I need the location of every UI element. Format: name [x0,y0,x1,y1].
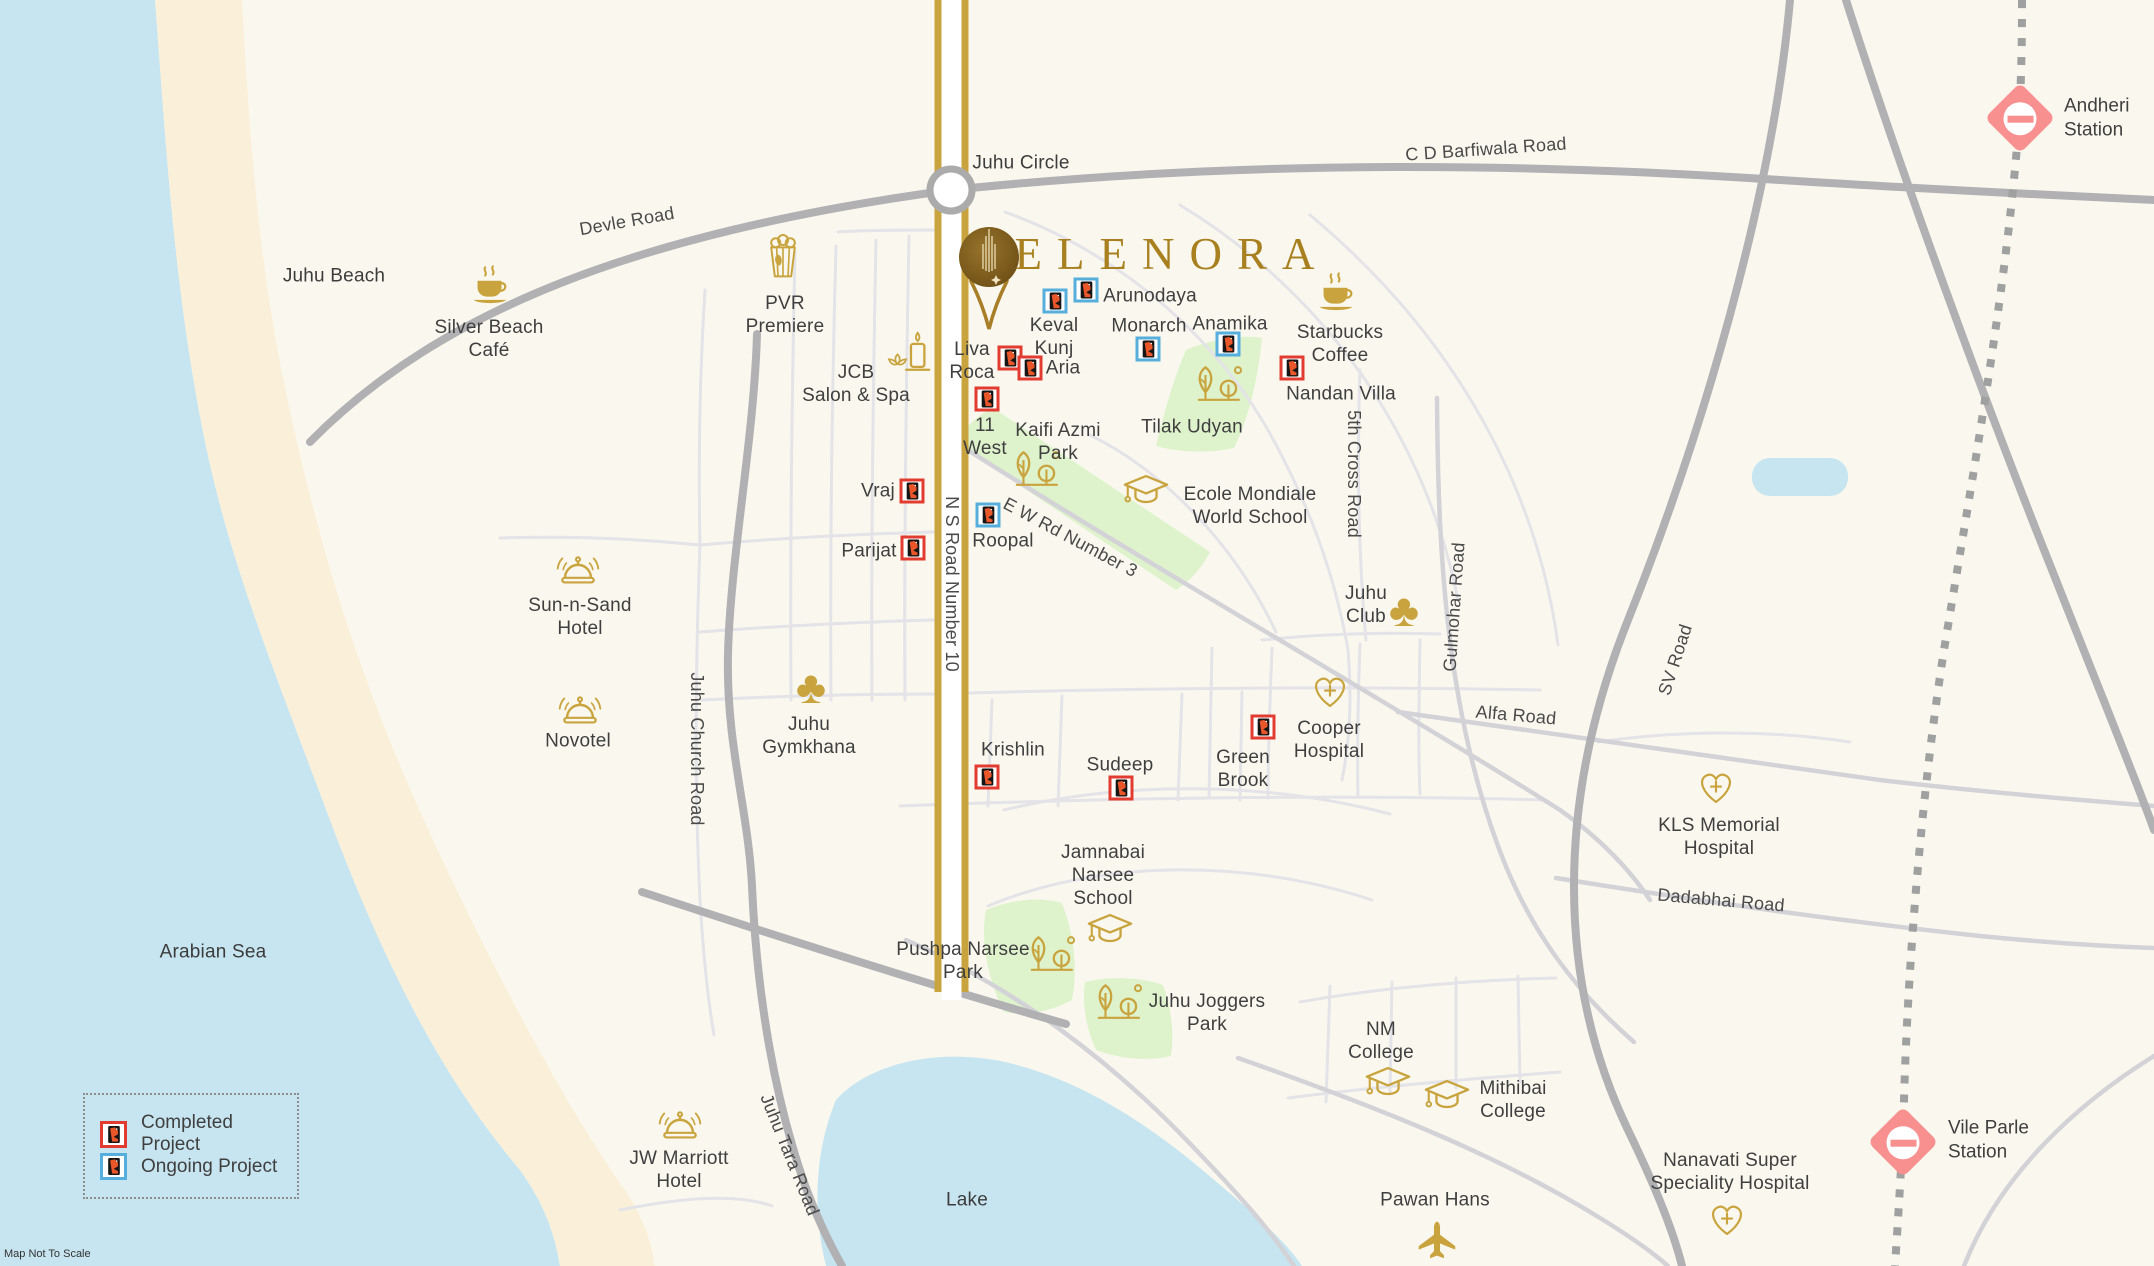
mithibai-college-label: Mithibai College [1479,1077,1546,1123]
grad-cap-icon [1364,1065,1412,1105]
monarch-marker [1136,337,1161,362]
juhu-gymkhana-label: Juhu Gymkhana [762,713,855,759]
nm-college-label: NM College [1348,1018,1414,1064]
ecole-mondiale-label: Ecole Mondiale World School [1184,483,1317,529]
monarch-label: Monarch [1111,314,1186,337]
grad-cap-icon [1423,1078,1471,1118]
jcb-salon-spa-label: JCB Salon & Spa [802,361,910,407]
vile-parle-station-label: Vile Parle Station [1948,1116,2029,1164]
legend-ongoing-label: Ongoing Project [141,1156,277,1178]
tree-icon [1189,364,1243,413]
bell-icon [554,550,602,595]
lake-label: Lake [946,1188,988,1211]
5th-cross-road-label: 5th Cross Road [1342,410,1364,538]
silver-beach-cafe-label: Silver Beach Café [434,316,543,362]
jamnabai-narsee-label: Jamnabai Narsee School [1061,841,1145,911]
arunodaya-label: Arunodaya [1103,284,1197,307]
legend: Completed Project Ongoing Project [83,1093,299,1199]
juhu-beach-label: Juhu Beach [283,264,385,287]
pond [1752,458,1848,496]
nanavati-hospital-label: Nanavati Super Speciality Hospital [1650,1149,1809,1195]
roopal-marker [976,503,1001,528]
liva-roca-label: Liva Roca [949,338,994,384]
roopal-label: Roopal [972,529,1033,552]
station-bar [2007,115,2033,122]
grad-cap-icon [1086,912,1134,952]
kls-memorial-label: KLS Memorial Hospital [1658,814,1780,860]
pawan-hans-label: Pawan Hans [1380,1188,1490,1211]
coffee-icon [467,264,513,315]
ns-road-number-10-label: N S Road Number 10 [940,496,962,672]
tree-icon [1089,982,1143,1031]
station-disc [2004,102,2037,135]
nandan-villa-marker [1280,356,1305,381]
club-icon: ♣ [796,664,826,710]
legend-ongoing-row: Ongoing Project [100,1153,277,1180]
sudeep-marker [1109,776,1134,801]
legend-completed-row: Completed Project [100,1112,297,1156]
station-bar [1890,1139,1916,1146]
heart-cross-icon [1695,769,1737,812]
green-brook-label: Green Brook [1216,746,1270,792]
tilak-udyan-label: Tilak Udyan [1141,415,1243,438]
green-brook-marker [1251,715,1276,740]
location-map: Juhu BeachArabian SeaLakeJuhu CircleDevl… [0,0,2154,1266]
juhu-circle-node [930,169,972,211]
parijat-marker [901,536,926,561]
anamika-label: Anamika [1192,312,1267,335]
map-canvas [0,0,2154,1266]
elenora-logo-text: ELENORA [1015,228,1330,280]
station-disc [1887,1126,1920,1159]
vraj-marker [900,479,925,504]
kaifi-azmi-park-label: Kaifi Azmi Park [1015,419,1100,465]
11-west-marker [975,387,1000,412]
novotel-label: Novotel [545,729,611,752]
heart-cross-icon [1706,1201,1748,1244]
dadabhai-road-line [1556,878,2154,948]
vraj-label: Vraj [861,479,895,502]
keval-kunj-marker [1043,289,1068,314]
tree-icon [1022,934,1076,983]
heart-cross-icon [1309,673,1351,716]
completed-project-icon [100,1121,127,1148]
keval-kunj-label: Keval Kunj [1030,314,1079,360]
andheri-station-label: Andheri Station [2064,94,2130,142]
parijat-label: Parijat [841,539,896,562]
jw-marriott-hotel-label: JW Marriott Hotel [629,1147,728,1193]
lake-water [817,1057,1302,1266]
juhu-circle-label: Juhu Circle [972,151,1069,174]
legend-completed-label: Completed Project [141,1112,297,1156]
ongoing-project-icon [100,1153,127,1180]
arunodaya-marker [1074,278,1099,303]
nandan-villa-label: Nandan Villa [1286,382,1396,405]
plane-icon [1417,1220,1457,1264]
grad-cap-icon [1122,473,1170,513]
juhu-church-road-label: Juhu Church Road [685,672,707,825]
popcorn-icon [763,232,803,285]
juhu-joggers-park-label: Juhu Joggers Park [1149,990,1265,1036]
juhu-club-label: Juhu Club [1345,582,1387,628]
bell-icon [656,1105,704,1150]
map-scale-note: Map Not To Scale [4,1248,91,1260]
pvr-premiere-label: PVR Premiere [746,292,825,338]
krishlin-label: Krishlin [981,738,1045,761]
krishlin-marker [975,765,1000,790]
sun-n-sand-hotel-label: Sun-n-Sand Hotel [528,594,631,640]
club-icon: ♣ [1389,587,1419,633]
starbucks-coffee-label: Starbucks Coffee [1297,321,1383,367]
bell-icon [556,690,604,735]
sudeep-label: Sudeep [1087,753,1154,776]
cooper-hospital-label: Cooper Hospital [1294,717,1364,763]
11-west-label: 11 West [963,414,1007,460]
pushpa-narsee-park-label: Pushpa Narsee Park [896,938,1030,984]
arabian-sea-label: Arabian Sea [160,940,267,963]
